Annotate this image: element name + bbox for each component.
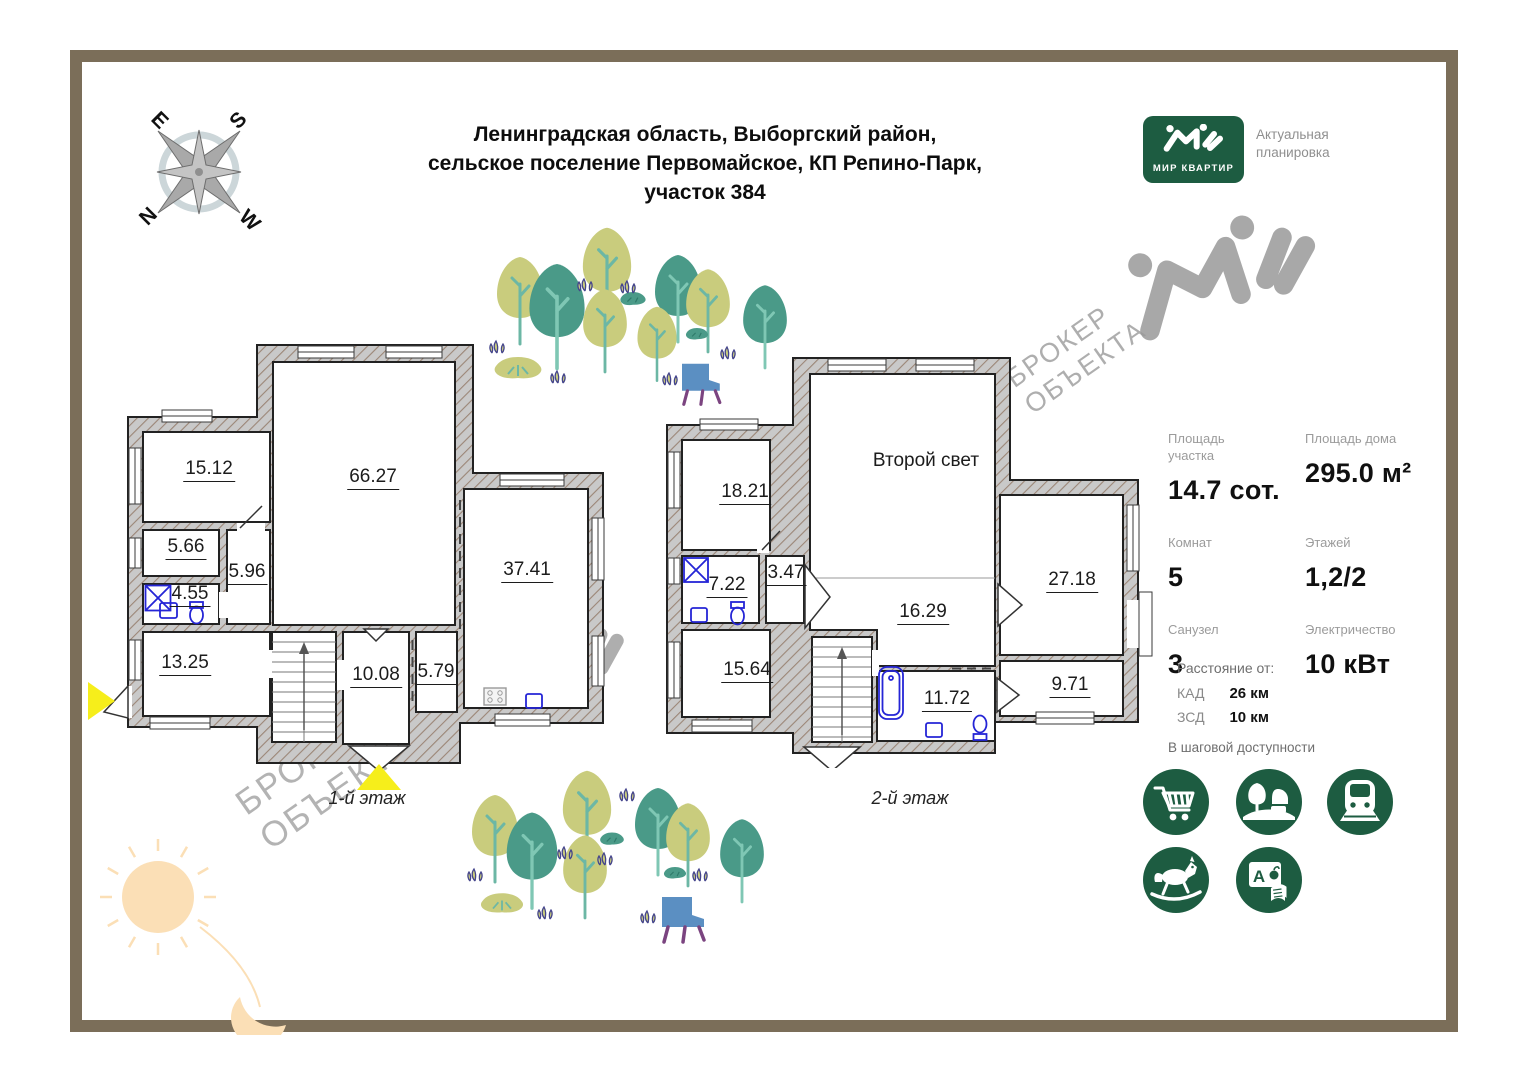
logo-caption: Актуальная планировка [1256,126,1330,162]
trees-illustration [450,765,770,960]
room-area-label: 27.18 [1046,569,1098,593]
amenity-park [1236,769,1302,835]
watermark-zigzag-icon [1110,182,1337,358]
entrance-marker-icon [357,764,401,790]
amenity-school: А [1236,847,1302,913]
school-icon: А [1236,847,1302,913]
park-icon [1236,769,1302,835]
room-area-label: 4.55 [170,583,211,607]
stat-label: Комнат [1168,534,1263,551]
title-line: участок 384 [400,178,1010,207]
logo-brand-text: МИР КВАРТИР [1143,163,1244,174]
stat-value: 295.0 м² [1305,458,1453,489]
distance-row: ЗСД 10 км [1177,709,1417,733]
floorplan-poster: E S N W Ленинградская область, Выборгски… [0,0,1528,1080]
page-title: Ленинградская область, Выборгский район,… [400,120,1010,207]
stat-value: 14.7 сот. [1168,475,1305,506]
school-letter: А [1253,867,1265,886]
room-area-label: 5.66 [166,536,207,560]
entrance-marker-icon [88,682,115,720]
stat-label: Этажей [1305,534,1400,551]
rocking-horse-icon [1143,847,1209,913]
distance-label: ЗСД [1177,709,1225,725]
distance-row: КАД 26 км [1177,685,1417,709]
stat-label: Площадь дома [1305,430,1400,447]
room-area-label: 16.29 [897,601,949,625]
room-area-label: 66.27 [347,466,399,490]
compass-letter-n: N [135,203,162,230]
room-area-label: 15.12 [183,458,235,482]
title-line: Ленинградская область, Выборгский район, [400,120,1010,149]
amenity-playground [1143,847,1209,913]
floor-plan-2 [650,348,1160,768]
room-area-label: 13.25 [159,652,211,676]
floor2-caption: 2-й этаж [871,788,948,809]
stat-storeys: Этажей 1,2/2 [1305,534,1453,593]
room-area-label: 37.41 [501,559,553,583]
stove-icon [484,688,506,705]
distance-value: 10 км [1229,709,1268,726]
compass-letter-e: E [147,107,173,133]
distances-block: Расстояние от: КАД 26 км ЗСД 10 км [1177,660,1417,733]
amenity-train [1327,769,1393,835]
mir-kvartir-logo: МИР КВАРТИР [1143,116,1244,183]
shopping-cart-icon [1143,769,1209,835]
chair-illustration [662,897,704,942]
title-line: сельское поселение Первомайское, КП Репи… [400,149,1010,178]
compass-letter-s: S [225,107,251,133]
distances-title: Расстояние от: [1177,660,1417,676]
room-area-label: 3.47 [766,562,807,586]
room-area-label: 9.71 [1050,674,1091,698]
stat-rooms: Комнат 5 [1168,534,1305,593]
stat-value: 1,2/2 [1305,562,1453,593]
room-area-label: 5.96 [227,561,268,585]
distance-label: КАД [1177,685,1225,701]
room-area-label: 10.08 [350,664,402,688]
train-icon [1327,769,1393,835]
compass-letter-w: W [234,205,264,235]
amenities-title: В шаговой доступности [1168,740,1315,755]
amenity-shopping [1143,769,1209,835]
sun-icon [122,861,194,933]
room-note-label: Второй свет [873,450,979,472]
sun-path-illustration [88,835,318,1035]
distance-value: 26 км [1229,685,1268,702]
room-area-label: 18.21 [719,481,771,505]
stat-label: Электричество [1305,621,1400,638]
stat-house-area: Площадь дома 295.0 м² [1305,430,1453,506]
compass-rose-icon: E S N W [125,95,275,245]
room-area-label: 7.22 [707,574,748,598]
stat-label: Санузел [1168,621,1263,638]
room-area-label: 11.72 [922,688,972,712]
stat-plot-area: Площадь участка 14.7 сот. [1168,430,1305,506]
floor1-caption: 1-й этаж [328,788,405,809]
stat-value: 5 [1168,562,1305,593]
room-area-label: 5.79 [416,661,457,685]
stat-label: Площадь участка [1168,430,1263,464]
mk-zigzag-logo-icon [1163,124,1225,152]
room-area-label: 15.64 [721,659,773,683]
